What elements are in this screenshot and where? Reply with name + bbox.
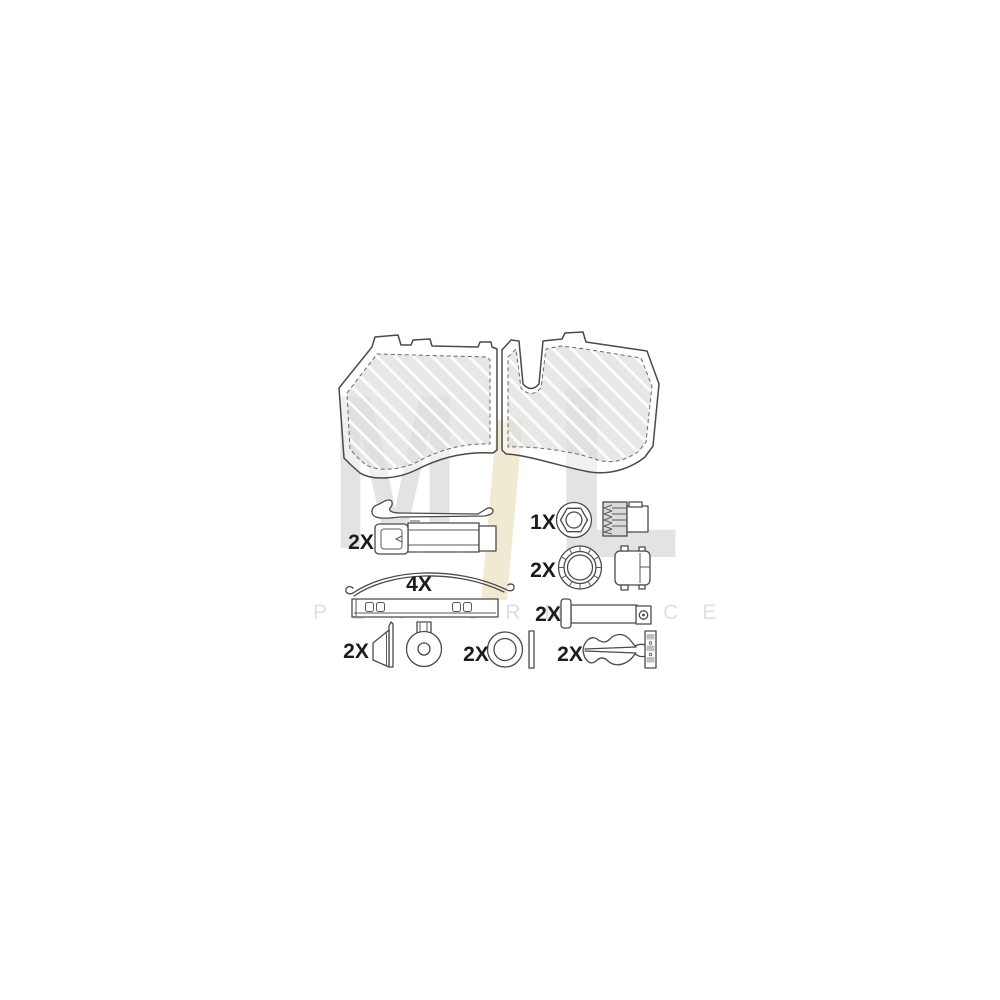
qty-label-clevis-pin: 2X: [535, 603, 561, 626]
qty-label-guide-boot: 2X: [343, 640, 369, 663]
splined-cap-body: [627, 506, 648, 532]
washer-side: [529, 631, 534, 668]
housing-cap: [615, 551, 650, 585]
qty-label-beta-clip: 2X: [557, 643, 583, 666]
qty-label-seal-ring: 2X: [530, 559, 556, 582]
guide-boot-part: [373, 622, 442, 667]
qty-label-retainer-spring: 2X: [348, 531, 374, 554]
beta-clip-part: [583, 631, 656, 668]
retainer-strip-part: [352, 599, 498, 617]
retainer-bracket-right-cap: [479, 526, 496, 551]
beta-clip: [583, 635, 650, 665]
hex-bushing-bore: [566, 512, 582, 528]
clevis-pin-body: [571, 605, 637, 623]
brake-pad-product-image: M L PERFORMANCE: [0, 0, 1000, 1000]
right-pad-friction-surface: [508, 346, 652, 462]
qty-label-washer: 2X: [463, 643, 489, 666]
qty-label-hex-bushing: 1X: [530, 511, 556, 534]
clevis-pin-flange: [561, 599, 571, 628]
retainer-bracket-body: [408, 523, 479, 552]
qty-label-leaf-spring: 4X: [406, 573, 432, 596]
washer-part: [488, 631, 535, 668]
